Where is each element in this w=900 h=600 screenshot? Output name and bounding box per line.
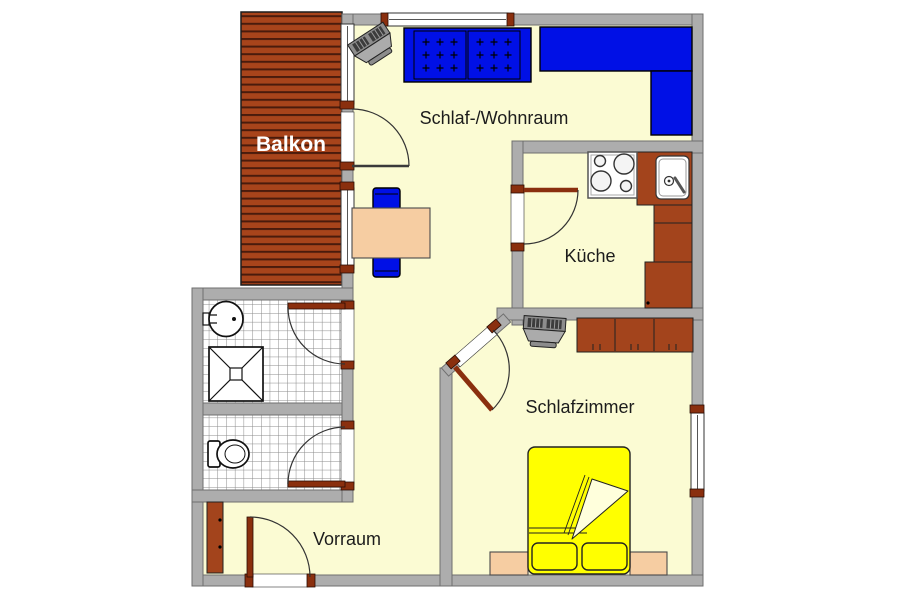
cabinet-handle: [218, 545, 221, 548]
label-schlafzimmer: Schlafzimmer: [525, 397, 634, 417]
sill-cap: [307, 574, 315, 587]
pillow: [532, 543, 577, 570]
double-bed: [528, 447, 630, 574]
stove-icon: [588, 152, 637, 198]
opening-entry-door: [252, 574, 308, 587]
corner-sofa-long: [540, 27, 692, 71]
sill-cap: [340, 101, 354, 109]
sill-cap: [341, 421, 354, 429]
opening-balcony-door: [341, 112, 354, 167]
opening-kitchen-door: [511, 192, 524, 245]
sill-cap: [340, 162, 354, 170]
burner-small: [621, 181, 632, 192]
sill-cap: [690, 489, 704, 497]
sill-cap: [511, 243, 524, 251]
door-leaf: [288, 481, 345, 487]
wardrobe: [577, 318, 693, 352]
toilet-bowl: [217, 440, 249, 468]
wall-bath-bottom: [192, 490, 353, 502]
chair: [373, 188, 400, 210]
floor-plan-svg: Balkon Schlaf-/Wohnraum Küche Schlafzimm…: [0, 0, 900, 600]
label-kueche: Küche: [564, 246, 615, 266]
opening-bath-door: [341, 308, 354, 363]
hall-furniture: [207, 502, 223, 573]
corner-sofa-short: [651, 71, 692, 135]
kitchen-cabinet: [654, 223, 692, 262]
basin-bowl: [209, 302, 243, 337]
label-vorraum: Vorraum: [313, 529, 381, 549]
burner-large: [591, 171, 611, 191]
sill-cap: [341, 361, 354, 369]
shower-icon: [209, 347, 263, 401]
hall-cabinet: [207, 502, 223, 573]
door-leaf: [247, 517, 253, 577]
kitchen-sink-icon: [656, 156, 689, 199]
nightstand: [490, 552, 528, 575]
door-leaf: [288, 303, 345, 309]
wall-bedroom-left: [440, 368, 452, 586]
dining-table: [352, 208, 430, 258]
basin-tap-block: [203, 313, 209, 325]
wall-outer-left: [192, 288, 203, 586]
shower-drain: [230, 368, 242, 380]
kitchen-cabinet: [654, 205, 692, 223]
kitchen-cabinet: [645, 262, 692, 308]
toilet-icon: [208, 440, 249, 468]
sill-cap: [340, 265, 354, 273]
label-wohnraum: Schlaf-/Wohnraum: [420, 108, 569, 128]
burner-large: [614, 154, 634, 174]
opening-wc-door: [341, 428, 354, 484]
nightstand: [630, 552, 667, 575]
pillow: [582, 543, 627, 570]
floor-plan-page: Balkon Schlaf-/Wohnraum Küche Schlafzimm…: [0, 0, 900, 600]
tv-body: [522, 329, 565, 344]
wall-kitchen-top: [513, 141, 703, 153]
basin-drain: [232, 317, 236, 321]
wall-right: [692, 14, 703, 586]
sink-drain-dot: [668, 180, 671, 183]
sill-cap: [340, 182, 354, 190]
sill-cap: [511, 185, 524, 193]
chair: [373, 256, 400, 277]
sofa-bed: [404, 28, 531, 82]
burner-small: [595, 156, 606, 167]
wall-bath-top: [192, 288, 353, 300]
wall-bath-divider: [203, 403, 342, 415]
sill-cap: [690, 405, 704, 413]
cabinet-handle: [646, 301, 649, 304]
sill-cap: [507, 13, 514, 26]
label-balkon: Balkon: [256, 133, 326, 156]
cabinet-handle: [218, 518, 221, 521]
